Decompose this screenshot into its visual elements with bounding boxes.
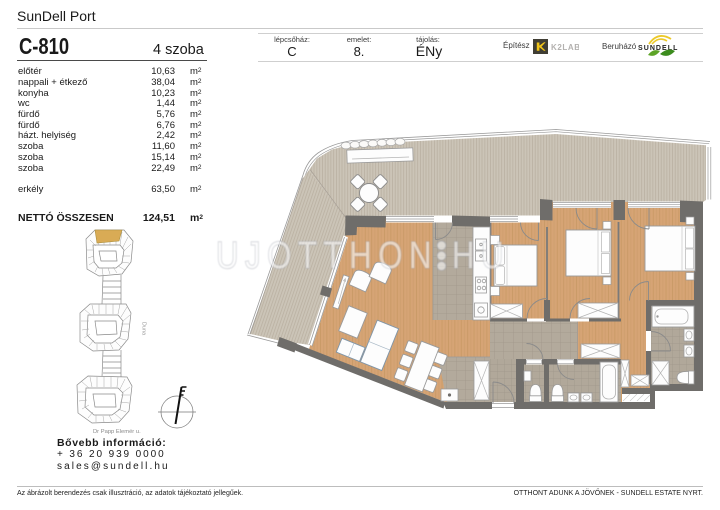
svg-text:UJOTTHON: UJOTTHON	[216, 235, 438, 277]
svg-text:Dr Papp Elemér u.: Dr Papp Elemér u.	[93, 429, 141, 435]
svg-text:HU: HU	[452, 235, 510, 277]
svg-text:K2LAB: K2LAB	[551, 43, 579, 52]
svg-text:Duna: Duna	[141, 322, 147, 336]
